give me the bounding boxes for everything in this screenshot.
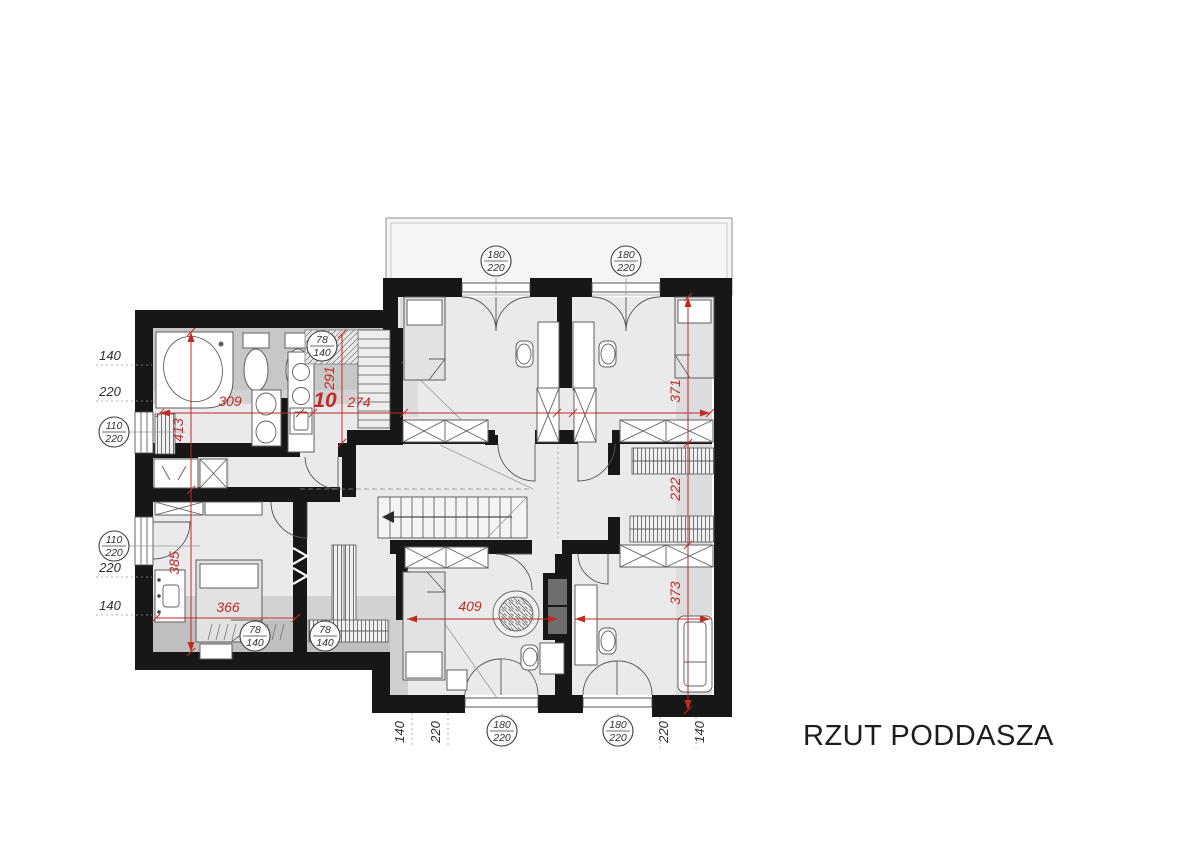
svg-text:180: 180 bbox=[493, 719, 511, 731]
bathroom-sinks bbox=[252, 390, 281, 446]
wardrobe bbox=[155, 502, 262, 515]
stamp-roof-window-bed-2: 78 140 bbox=[310, 621, 340, 651]
chair bbox=[599, 628, 616, 654]
svg-text:220: 220 bbox=[104, 433, 123, 445]
wardrobe bbox=[620, 545, 713, 567]
pillow bbox=[200, 564, 258, 588]
svg-text:140: 140 bbox=[246, 637, 264, 649]
svg-text:180: 180 bbox=[609, 719, 627, 731]
bench bbox=[200, 644, 232, 659]
svg-text:78: 78 bbox=[249, 624, 261, 636]
edge-dim: 140 bbox=[99, 348, 121, 363]
dim-222: 222 bbox=[667, 477, 683, 502]
wardrobe bbox=[620, 420, 713, 442]
svg-text:220: 220 bbox=[104, 547, 123, 559]
kitchenette bbox=[288, 352, 314, 452]
wardrobe bbox=[405, 547, 488, 568]
toilet bbox=[243, 333, 269, 391]
stamp-roof-window-bed-1: 78 140 bbox=[240, 621, 270, 651]
svg-text:140: 140 bbox=[313, 347, 331, 359]
edge-dim: 140 bbox=[392, 720, 407, 742]
svg-text:220: 220 bbox=[492, 732, 511, 744]
edge-dim: 220 bbox=[428, 720, 443, 743]
wardrobe bbox=[403, 420, 488, 442]
svg-text:110: 110 bbox=[106, 534, 123, 546]
round-rug bbox=[493, 591, 539, 637]
edge-dimensions-bottom: 140 220 220 140 bbox=[392, 713, 707, 748]
desk bbox=[540, 643, 564, 674]
dim-371: 371 bbox=[667, 379, 683, 402]
page-title: RZUT PODDASZA bbox=[803, 720, 1054, 753]
svg-text:78: 78 bbox=[316, 334, 328, 346]
svg-text:180: 180 bbox=[617, 249, 635, 261]
dim-291: 291 bbox=[321, 366, 337, 390]
edge-dim: 220 bbox=[98, 560, 121, 575]
svg-text:78: 78 bbox=[319, 624, 331, 636]
floor-plan-page: 309 10 274 413 291 371 222 373 385 366 4… bbox=[0, 0, 1200, 846]
pillow bbox=[678, 300, 711, 323]
svg-text:220: 220 bbox=[608, 732, 627, 744]
couch bbox=[678, 616, 712, 692]
chair bbox=[516, 341, 533, 367]
nightstand bbox=[447, 670, 467, 690]
window-left-bottom bbox=[135, 517, 153, 565]
window-left-top bbox=[135, 412, 153, 453]
edge-dim: 220 bbox=[98, 384, 121, 399]
dim-274: 274 bbox=[346, 394, 371, 410]
svg-text:180: 180 bbox=[487, 249, 505, 261]
edge-dim: 140 bbox=[692, 720, 707, 742]
svg-text:220: 220 bbox=[616, 262, 635, 274]
dim-409: 409 bbox=[458, 598, 482, 614]
svg-text:140: 140 bbox=[316, 637, 334, 649]
chimney-duct bbox=[543, 573, 572, 640]
stamp-door-bottom-left: 180 220 bbox=[487, 713, 517, 746]
dim-366: 366 bbox=[216, 599, 240, 615]
stamp-roof-window-kitchen: 78 140 bbox=[307, 331, 337, 361]
pillow bbox=[406, 652, 442, 678]
svg-text:220: 220 bbox=[486, 262, 505, 274]
wardrobe-tall bbox=[574, 388, 596, 442]
desk bbox=[538, 322, 559, 390]
pillow bbox=[407, 300, 442, 325]
dim-10: 10 bbox=[313, 389, 337, 412]
dim-385: 385 bbox=[166, 551, 182, 575]
svg-text:110: 110 bbox=[106, 420, 123, 432]
dim-413: 413 bbox=[170, 418, 186, 442]
stamp-door-bottom-right: 180 220 bbox=[603, 713, 633, 746]
desk bbox=[573, 322, 594, 390]
dim-309: 309 bbox=[218, 393, 242, 409]
bathroom-cabinet bbox=[200, 459, 227, 488]
edge-dim: 140 bbox=[99, 598, 121, 613]
chair bbox=[599, 341, 616, 367]
edge-dim: 220 bbox=[656, 720, 671, 743]
shelf bbox=[205, 502, 262, 515]
desk bbox=[575, 585, 597, 665]
dim-373: 373 bbox=[667, 581, 683, 605]
